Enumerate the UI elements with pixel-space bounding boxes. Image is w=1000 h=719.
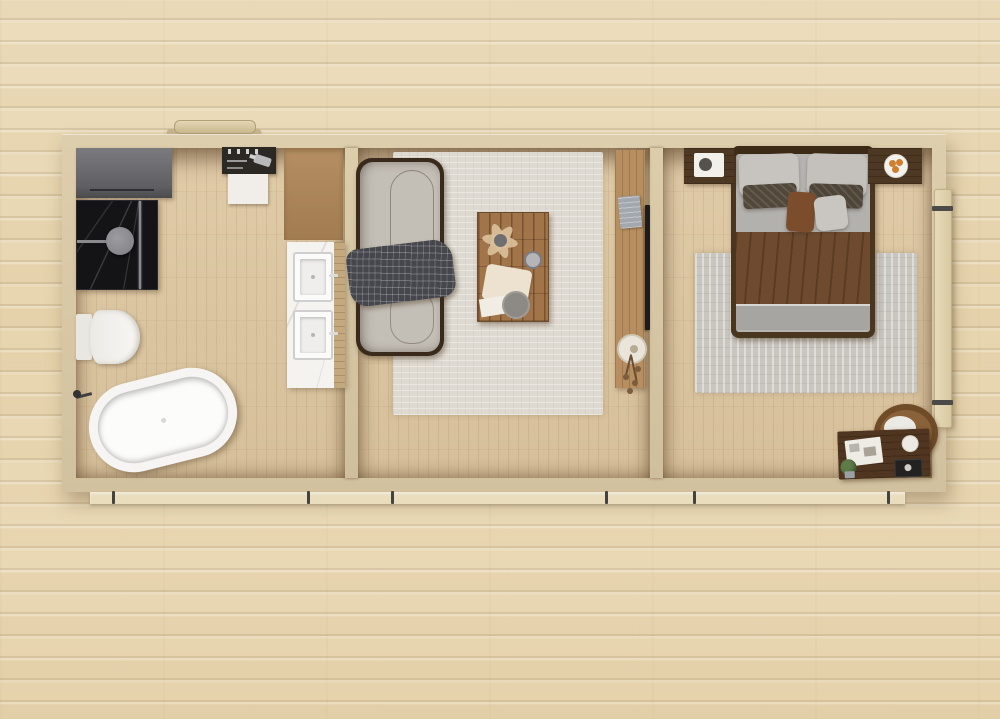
fruit xyxy=(896,159,903,166)
decor-disc xyxy=(699,158,712,171)
house-shell xyxy=(62,134,946,492)
plant-pot xyxy=(845,471,855,478)
flower-head xyxy=(632,380,638,386)
floor-plan-render xyxy=(0,0,1000,719)
freestanding-bathtub xyxy=(79,358,246,482)
double-bed xyxy=(731,146,875,338)
flower-vase xyxy=(494,234,507,247)
vanity-wood-trim xyxy=(334,242,345,388)
hair-dryer xyxy=(253,154,272,168)
bathtub-drain xyxy=(161,417,167,423)
skid-bracket xyxy=(605,491,608,504)
flower-head xyxy=(627,388,633,394)
sink-drain xyxy=(311,333,315,337)
sink xyxy=(293,252,333,302)
shelf-rail xyxy=(227,167,243,169)
throw-blanket xyxy=(736,232,870,304)
coffee-table xyxy=(477,212,549,322)
room-bedroom xyxy=(663,148,932,478)
door-hinge xyxy=(932,400,953,405)
skid-bracket xyxy=(887,491,890,504)
fruit-plate xyxy=(884,154,908,178)
skid-bracket xyxy=(307,491,310,504)
fruit xyxy=(892,166,899,173)
photo-print xyxy=(894,459,923,478)
door-hinge xyxy=(932,206,953,211)
sink-faucet xyxy=(329,274,338,277)
wardrobe-cabinet xyxy=(76,148,172,198)
skid-bracket xyxy=(391,491,394,504)
shower-glass-panel xyxy=(139,201,141,289)
sink-basin xyxy=(300,317,326,353)
writing-desk xyxy=(837,428,931,479)
walk-in-shower xyxy=(76,200,158,290)
speaker xyxy=(618,195,643,229)
tray xyxy=(694,153,724,177)
flower-head xyxy=(635,366,641,372)
side-door-leaf xyxy=(934,189,952,428)
tan-counter xyxy=(284,148,343,240)
wall-living-bedroom xyxy=(650,148,663,478)
bathtub-basin xyxy=(90,369,235,471)
sink-drain xyxy=(311,275,315,279)
sink-basin xyxy=(300,259,326,295)
shelf-rail xyxy=(227,160,247,162)
foundation-skid xyxy=(90,492,905,504)
room-bathroom xyxy=(76,148,345,478)
flower-head xyxy=(623,374,629,380)
paper-photo xyxy=(863,446,876,456)
serving-plate xyxy=(502,291,530,319)
bath-faucet-knob xyxy=(73,390,81,398)
shower-head xyxy=(106,227,134,255)
shower-arm xyxy=(77,240,109,243)
lumbar-pillow xyxy=(786,191,817,233)
towel xyxy=(228,174,268,204)
room-living xyxy=(358,148,650,478)
folded-sheet xyxy=(736,304,870,330)
marble-vanity xyxy=(287,242,345,388)
paper-photo xyxy=(849,443,860,452)
skid-bracket xyxy=(693,491,696,504)
toiletries-shelf xyxy=(222,147,276,174)
cup-with-flower xyxy=(901,435,919,453)
sink xyxy=(293,310,333,360)
wall-tv xyxy=(645,205,650,330)
nightstand-right xyxy=(868,148,922,184)
top-door-handle xyxy=(174,120,256,134)
media-console xyxy=(615,150,645,388)
sink-faucet xyxy=(329,332,338,335)
small-pillow xyxy=(813,194,849,232)
toilet xyxy=(90,310,140,364)
nightstand-left xyxy=(684,148,734,184)
skid-bracket xyxy=(112,491,115,504)
mug xyxy=(524,251,542,269)
dried-flower-stems xyxy=(617,354,645,414)
vase-mouth xyxy=(630,345,638,353)
